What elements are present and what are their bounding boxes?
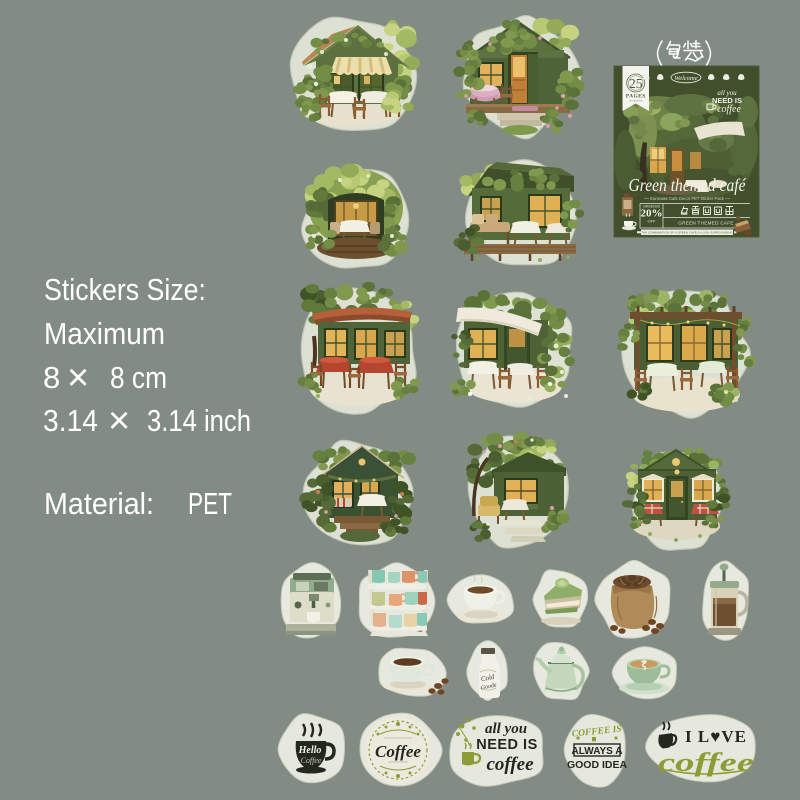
svg-text:coffee: coffee (486, 754, 534, 775)
svg-text:×: × (67, 357, 89, 399)
svg-text:Material:: Material: (44, 486, 154, 521)
svg-text:GREEN THEMED CAFE: GREEN THEMED CAFE (678, 221, 734, 226)
svg-text:×: × (108, 400, 130, 442)
svg-text:Coffee: Coffee (301, 756, 322, 765)
svg-text:PET: PET (188, 486, 232, 521)
svg-text:Welcome: Welcome (674, 75, 697, 82)
svg-text:Green themed café: Green themed café (629, 175, 747, 195)
svg-text:3.14: 3.14 (43, 403, 98, 438)
svg-text:I L♥VE: I L♥VE (685, 727, 747, 746)
svg-text:25: 25 (629, 76, 643, 91)
svg-text:NEED IS: NEED IS (476, 737, 538, 753)
svg-text:Hello: Hello (298, 745, 322, 756)
svg-text:Stickers Size:: Stickers Size: (44, 272, 206, 307)
svg-text:THE COMBINATION OF A GREEN CAF: THE COMBINATION OF A GREEN CAFE IN LUSH … (641, 231, 733, 235)
svg-text:ALWAYS A: ALWAYS A (572, 746, 623, 757)
svg-text:GOOD IDEA: GOOD IDEA (567, 759, 628, 771)
svg-text:of stickers: of stickers (629, 99, 643, 103)
svg-text:8 cm: 8 cm (110, 360, 167, 395)
svg-text:8: 8 (43, 360, 60, 395)
svg-text:~~ Eurocase Cafe Decor PET: ~~ Eurocase Cafe Decor PET Sticker Pack … (644, 196, 730, 201)
svg-text:coffee: coffee (658, 748, 754, 777)
svg-text:Coffee: Coffee (375, 742, 421, 761)
svg-text:Maximum: Maximum (44, 316, 165, 351)
svg-text:all you: all you (485, 721, 527, 737)
svg-text:3.14 inch: 3.14 inch (147, 403, 251, 438)
svg-text:OFF: OFF (648, 219, 657, 224)
svg-text:coffee: coffee (717, 104, 741, 115)
